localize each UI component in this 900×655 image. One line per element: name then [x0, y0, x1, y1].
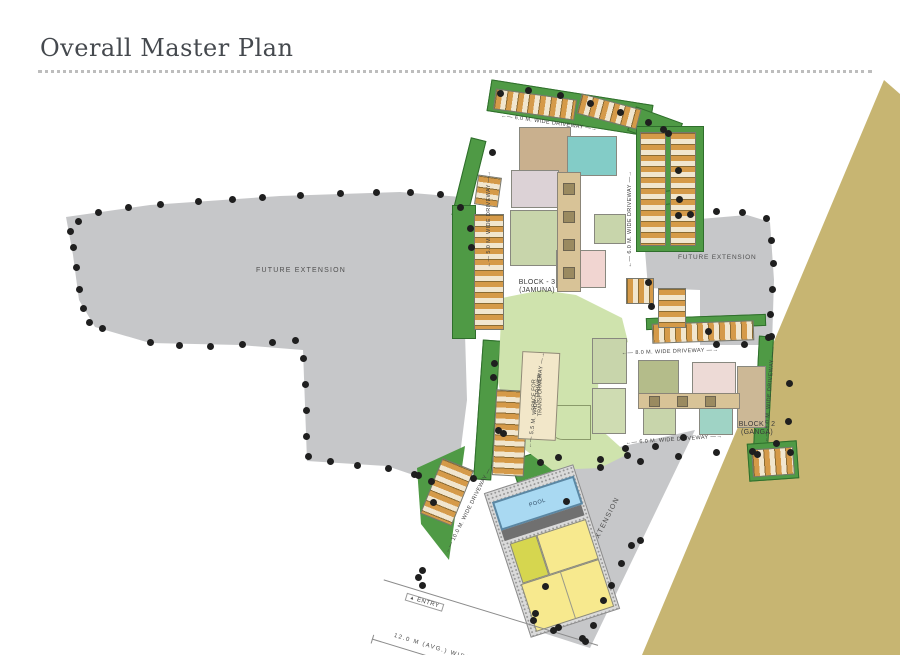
tree-icon — [786, 380, 793, 387]
tree-icon — [645, 119, 652, 126]
dotted-separator — [38, 70, 872, 73]
tree-icon — [95, 209, 102, 216]
tree-icon — [600, 597, 607, 604]
tree-icon — [532, 610, 539, 617]
tree-icon — [768, 333, 775, 340]
tree-icon — [489, 149, 496, 156]
tree-icon — [763, 215, 770, 222]
page-title: Overall Master Plan — [40, 34, 293, 62]
tree-icon — [785, 418, 792, 425]
pool-label: POOL — [528, 498, 546, 509]
tree-icon — [385, 465, 392, 472]
tree-icon — [687, 211, 694, 218]
tree-icon — [787, 449, 794, 456]
tree-icon — [259, 194, 266, 201]
tree-icon — [497, 90, 504, 97]
tree-icon — [300, 355, 307, 362]
block2-building-lightgreen-nw — [592, 338, 627, 384]
tree-icon — [739, 209, 746, 216]
future-extension-left — [60, 185, 470, 485]
tree-icon — [550, 627, 557, 634]
tree-icon — [269, 339, 276, 346]
tree-icon — [713, 208, 720, 215]
tree-icon — [407, 189, 414, 196]
tree-icon — [675, 453, 682, 460]
block2-building-pink — [692, 362, 736, 396]
tree-icon — [147, 339, 154, 346]
tree-icon — [297, 192, 304, 199]
block3-building-teal — [567, 136, 617, 176]
tree-icon — [303, 407, 310, 414]
tree-icon — [680, 434, 687, 441]
tree-icon — [563, 498, 570, 505]
tree-icon — [437, 191, 444, 198]
block3-building-mauve — [511, 170, 559, 208]
tree-icon — [705, 328, 712, 335]
tree-icon — [530, 617, 537, 624]
tree-icon — [754, 451, 761, 458]
tree-icon — [628, 542, 635, 549]
tree-icon — [292, 337, 299, 344]
block2-building-teal — [699, 405, 733, 435]
tree-icon — [768, 237, 775, 244]
tree-icon — [713, 449, 720, 456]
tree-icon — [537, 459, 544, 466]
tree-icon — [637, 458, 644, 465]
tree-icon — [86, 319, 93, 326]
tree-icon — [622, 445, 629, 452]
tree-icon — [557, 92, 564, 99]
tree-icon — [648, 303, 655, 310]
tree-icon — [99, 325, 106, 332]
tree-icon — [157, 201, 164, 208]
tree-icon — [525, 87, 532, 94]
future-extension-left-label: FUTURE EXTENSION — [256, 267, 346, 275]
tree-icon — [430, 499, 437, 506]
tree-icon — [195, 198, 202, 205]
tree-icon — [457, 204, 464, 211]
tree-icon — [579, 635, 586, 642]
tree-icon — [597, 464, 604, 471]
tree-icon — [73, 264, 80, 271]
tree-icon — [468, 244, 475, 251]
tree-icon — [675, 167, 682, 174]
tree-icon — [419, 582, 426, 589]
block2-building-lightgreen-s — [643, 407, 676, 435]
parking-row — [670, 132, 696, 246]
tree-icon — [415, 574, 422, 581]
tree-icon — [555, 454, 562, 461]
tree-icon — [637, 537, 644, 544]
tree-icon — [590, 622, 597, 629]
tree-icon — [337, 190, 344, 197]
tree-icon — [354, 462, 361, 469]
tree-icon — [229, 196, 236, 203]
tree-icon — [419, 567, 426, 574]
tree-icon — [70, 244, 77, 251]
block2-core-spine — [638, 393, 740, 409]
block2-building-olive — [638, 360, 679, 396]
driveway-label-block2-north: 8.0 M. WIDE DRIVEWAY — [622, 347, 719, 357]
tree-icon — [773, 440, 780, 447]
tree-icon — [125, 204, 132, 211]
tree-icon — [608, 582, 615, 589]
tree-icon — [428, 478, 435, 485]
tree-icon — [415, 472, 422, 479]
master-plan-page: { "page": { "title": "Overall Master Pla… — [0, 0, 900, 655]
tree-icon — [470, 475, 477, 482]
tree-icon — [770, 260, 777, 267]
tree-icon — [75, 218, 82, 225]
tree-icon — [500, 430, 507, 437]
tree-icon — [80, 305, 87, 312]
tree-icon — [587, 100, 594, 107]
driveway-label-block3-east: 6.0 M. WIDE DRIVEWAY — [627, 171, 633, 268]
tree-icon — [713, 341, 720, 348]
block3-building-lightgreen-west — [510, 210, 559, 266]
tree-icon — [176, 342, 183, 349]
parking-row — [658, 288, 686, 328]
tree-icon — [767, 311, 774, 318]
tree-icon — [769, 286, 776, 293]
tree-icon — [302, 381, 309, 388]
tree-icon — [652, 443, 659, 450]
block3-core-spine — [557, 172, 581, 292]
tree-icon — [207, 343, 214, 350]
tree-icon — [618, 560, 625, 567]
tree-icon — [741, 341, 748, 348]
tree-icon — [645, 279, 652, 286]
tree-icon — [67, 228, 74, 235]
block2-building-tan — [737, 366, 766, 428]
tree-icon — [467, 225, 474, 232]
tree-icon — [624, 452, 631, 459]
tree-icon — [597, 456, 604, 463]
driveway-label-block3-west: 5.0 M. WIDE DRIVEWAY — [486, 171, 492, 268]
tree-icon — [617, 109, 624, 116]
parking-row — [640, 132, 666, 246]
block3-label: BLOCK - 3(JAMUNA) — [519, 279, 556, 295]
tree-icon — [76, 286, 83, 293]
tree-icon — [676, 196, 683, 203]
tree-icon — [305, 453, 312, 460]
tree-icon — [490, 374, 497, 381]
tree-icon — [675, 212, 682, 219]
future-extension-right-label: FUTURE EXTENSION — [678, 254, 757, 261]
tree-icon — [491, 360, 498, 367]
block3-building-tan — [519, 127, 571, 173]
tree-icon — [327, 458, 334, 465]
tree-icon — [542, 583, 549, 590]
tree-icon — [303, 433, 310, 440]
tree-icon — [373, 189, 380, 196]
tree-icon — [665, 130, 672, 137]
tree-icon — [239, 341, 246, 348]
block3-building-lightgreen-east — [594, 214, 626, 244]
block2-building-lightgreen-sw — [592, 388, 626, 434]
